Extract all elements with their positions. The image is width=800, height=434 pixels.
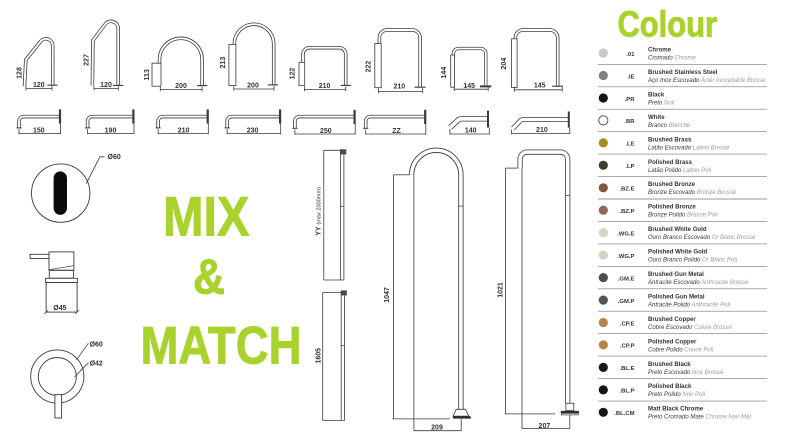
svg-text:Preto Polido Noir Poli: Preto Polido Noir Poli — [648, 392, 706, 398]
svg-text:113: 113 — [144, 69, 151, 80]
svg-text:Chrome: Chrome — [648, 47, 672, 54]
svg-text:204: 204 — [501, 58, 508, 70]
svg-text:ZZ: ZZ — [392, 128, 401, 135]
svg-text:Polished Black: Polished Black — [648, 383, 692, 390]
svg-text:.BR: .BR — [624, 119, 635, 125]
svg-text:Polished Copper: Polished Copper — [648, 338, 697, 345]
svg-text:190: 190 — [105, 127, 117, 134]
svg-text:210: 210 — [393, 84, 405, 91]
svg-text:Brushed Stainless Steel: Brushed Stainless Steel — [648, 69, 718, 76]
svg-text:.BL.E: .BL.E — [619, 366, 634, 372]
svg-text:Black: Black — [648, 91, 665, 98]
svg-text:.01: .01 — [626, 52, 635, 58]
svg-text:.BZ.P: .BZ.P — [619, 209, 634, 215]
svg-text:.BL.CM: .BL.CM — [614, 411, 634, 417]
svg-text:.WG.E: .WG.E — [617, 232, 634, 238]
svg-text:122: 122 — [290, 68, 297, 80]
svg-text:Latão Escovado Laiton Brossé: Latão Escovado Laiton Brossé — [648, 145, 730, 151]
svg-text:Ø60: Ø60 — [108, 154, 121, 161]
svg-text:140: 140 — [465, 127, 477, 134]
svg-text:Brushed Bronze: Brushed Bronze — [648, 181, 696, 188]
svg-text:1021: 1021 — [497, 282, 504, 298]
svg-text:MIX: MIX — [163, 184, 250, 247]
svg-text:.LP: .LP — [625, 164, 634, 170]
svg-text:213: 213 — [220, 57, 227, 69]
svg-text:.GM.P: .GM.P — [618, 299, 635, 305]
svg-text:Bronze Escovado Bronze Brossé: Bronze Escovado Bronze Brossé — [648, 190, 737, 196]
svg-text:&: & — [193, 249, 225, 304]
svg-text:Cromado Chrome: Cromado Chrome — [648, 56, 696, 62]
svg-text:207: 207 — [539, 423, 551, 430]
svg-text:200: 200 — [247, 82, 259, 89]
svg-text:Ø45: Ø45 — [53, 305, 66, 312]
svg-text:Cobre Polido Cuivre Poli: Cobre Polido Cuivre Poli — [648, 347, 714, 353]
svg-text:YY (max 2000mm): YY (max 2000mm) — [316, 187, 323, 236]
svg-text:Matt Black Chrome: Matt Black Chrome — [648, 406, 704, 413]
svg-text:150: 150 — [33, 127, 45, 134]
svg-text:Polished Bronze: Polished Bronze — [648, 204, 696, 211]
svg-text:200: 200 — [175, 83, 187, 90]
svg-text:Colour: Colour — [618, 4, 718, 45]
svg-text:Aço Inox Escovado Acier Inoxyd: Aço Inox Escovado Acier Inoxydable Bross… — [647, 78, 766, 84]
svg-text:Ouro Branco Polido Or Blanc Po: Ouro Branco Polido Or Blanc Poli — [648, 258, 738, 264]
svg-text:Latão Polido Laiton Poli: Latão Polido Laiton Poli — [648, 168, 712, 174]
svg-text:Polished Brass: Polished Brass — [648, 159, 693, 166]
svg-text:.IE: .IE — [627, 74, 634, 80]
svg-text:210: 210 — [178, 127, 190, 134]
svg-text:250: 250 — [320, 128, 332, 135]
svg-text:Cobre Escovado Cuivre Brossé: Cobre Escovado Cuivre Brossé — [648, 325, 732, 331]
svg-text:Brushed Brass: Brushed Brass — [648, 136, 692, 143]
svg-text:120: 120 — [33, 82, 45, 89]
svg-text:Antracite Escovado Anthracite: Antracite Escovado Anthracite Brossé — [647, 280, 749, 286]
svg-text:Preto Escovado Noir Brossé: Preto Escovado Noir Brossé — [648, 370, 724, 376]
svg-text:Brushed Gun Metal: Brushed Gun Metal — [648, 271, 704, 278]
svg-text:209: 209 — [431, 425, 443, 432]
svg-text:Preto Cromado Mate Chrome Noir: Preto Cromado Mate Chrome Noir Mat — [648, 415, 751, 421]
svg-text:Ø42: Ø42 — [90, 360, 103, 367]
svg-text:Bronze Polido Bronze Poli: Bronze Polido Bronze Poli — [648, 213, 718, 219]
svg-text:Ø60: Ø60 — [90, 341, 103, 348]
svg-text:Polished White Gold: Polished White Gold — [648, 249, 708, 256]
svg-text:.CP.P: .CP.P — [620, 344, 635, 350]
svg-text:144: 144 — [441, 67, 448, 79]
svg-text:.PR: .PR — [625, 97, 636, 103]
svg-text:Preto Noir: Preto Noir — [648, 100, 676, 106]
svg-text:Branco Blanche: Branco Blanche — [648, 123, 691, 129]
svg-text:.BL.P: .BL.P — [619, 389, 634, 395]
svg-text:145: 145 — [463, 83, 475, 90]
svg-text:128: 128 — [17, 67, 24, 79]
svg-text:.CP.E: .CP.E — [620, 321, 635, 327]
svg-text:.GM.E: .GM.E — [618, 276, 635, 282]
svg-text:210: 210 — [319, 83, 331, 90]
svg-text:227: 227 — [84, 54, 91, 66]
svg-text:.WG.P: .WG.P — [617, 254, 634, 260]
svg-text:White: White — [648, 114, 665, 121]
svg-text:.BZ.E: .BZ.E — [619, 187, 634, 193]
svg-text:210: 210 — [536, 127, 548, 134]
svg-text:Ouro Branco Escovado Or Blanc: Ouro Branco Escovado Or Blanc Brossé — [648, 235, 756, 241]
svg-text:Brushed Copper: Brushed Copper — [648, 316, 696, 323]
svg-text:145: 145 — [534, 82, 546, 89]
svg-text:222: 222 — [365, 61, 372, 73]
svg-text:.LE: .LE — [625, 142, 634, 148]
svg-text:120: 120 — [100, 82, 112, 89]
svg-text:Brushed White Gold: Brushed White Gold — [648, 226, 707, 233]
svg-text:1605: 1605 — [316, 348, 323, 364]
svg-text:Polished Gun Metal: Polished Gun Metal — [648, 293, 705, 300]
svg-text:Antracite Polido Anthracite Po: Antracite Polido Anthracite Poli — [647, 302, 731, 308]
svg-text:230: 230 — [247, 127, 259, 134]
svg-text:1047: 1047 — [384, 287, 391, 303]
svg-text:Brushed Black: Brushed Black — [648, 361, 691, 368]
svg-text:MATCH: MATCH — [141, 317, 302, 376]
